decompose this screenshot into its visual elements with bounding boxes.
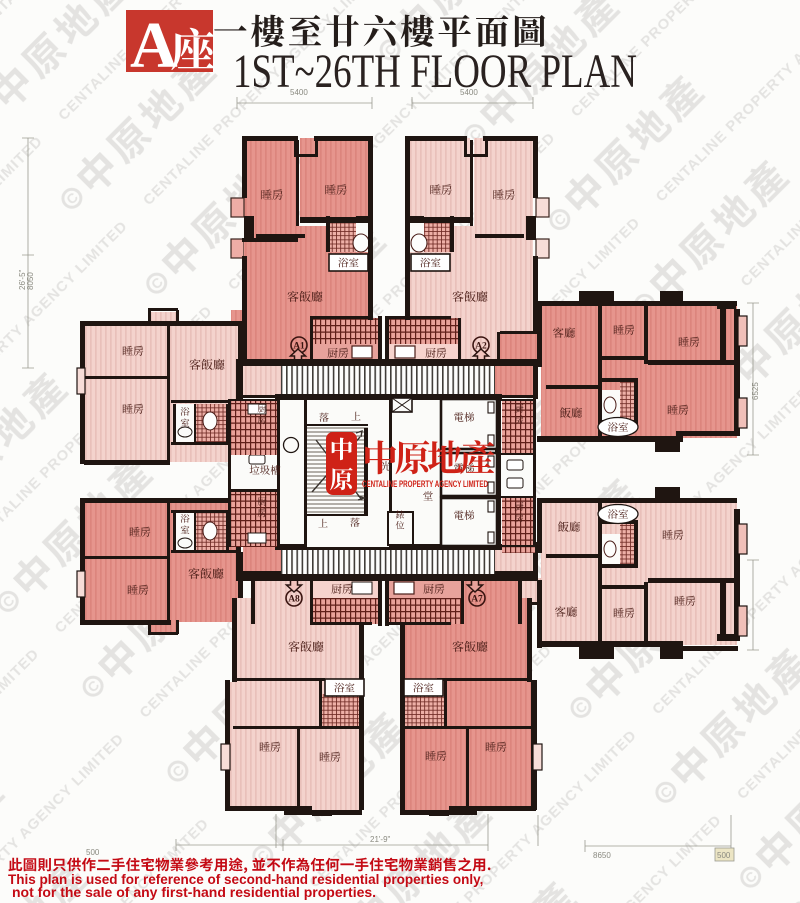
svg-text:6525: 6525 — [751, 382, 760, 400]
svg-text:A: A — [130, 9, 178, 82]
svg-text:26'-5": 26'-5" — [18, 269, 27, 290]
svg-text:A7: A7 — [471, 594, 483, 604]
svg-text:not for the sale of any first-: not for the sale of any first-hand resid… — [12, 884, 376, 900]
svg-text:500: 500 — [86, 848, 100, 857]
svg-text:CENTALINE PROPERTY AGENCY LIMI: CENTALINE PROPERTY AGENCY LIMITED — [362, 479, 488, 489]
svg-text:21'-9": 21'-9" — [370, 835, 391, 844]
svg-text:5400: 5400 — [460, 88, 478, 97]
svg-text:5400: 5400 — [290, 88, 308, 97]
svg-text:8050: 8050 — [26, 272, 35, 290]
svg-text:500: 500 — [717, 851, 731, 860]
svg-text:8650: 8650 — [593, 851, 611, 860]
svg-text:A8: A8 — [288, 594, 300, 604]
